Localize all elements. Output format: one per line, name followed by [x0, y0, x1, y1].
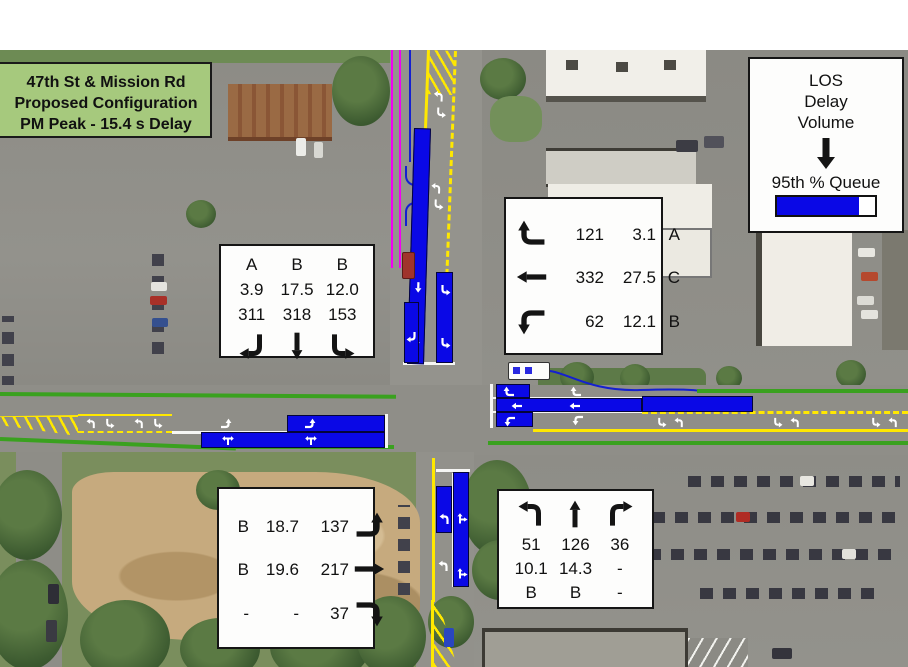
parked-cars-row: [688, 476, 900, 487]
building-roof: [657, 228, 712, 278]
white-lane-arrow-icon: [569, 400, 581, 412]
building-roof: [228, 84, 332, 141]
white-lane-arrow-icon: [656, 417, 667, 428]
right-then-up-arrow-icon: [353, 510, 385, 542]
car: [444, 628, 454, 647]
wb-delay: 12.1: [623, 313, 656, 330]
wb-delay: 27.5: [623, 269, 656, 286]
legend-label-delay: Delay: [750, 93, 902, 110]
top-white-band: [0, 0, 908, 50]
white-lane-arrow-icon: [430, 182, 442, 194]
left-then-up-arrow-icon: [516, 218, 548, 250]
nb-los: B: [525, 584, 536, 601]
parked-car: [861, 272, 878, 281]
eastbound-results-box: B 18.7 137 B 19.6 217 - - 37: [217, 487, 375, 649]
legend-label-los: LOS: [750, 72, 902, 89]
white-lane-arrow-icon: [439, 284, 451, 296]
yellow-edge-line: [432, 458, 435, 602]
stop-bar: [385, 414, 388, 448]
eb-volume: 217: [321, 561, 349, 578]
building-roof: [546, 50, 706, 102]
yellow-center-line: [533, 429, 908, 432]
left-arrow-icon: [516, 261, 548, 293]
white-lane-arrow-icon: [433, 90, 445, 102]
down-arrow-icon: [282, 331, 312, 361]
parking-lot: [882, 230, 908, 350]
nb-los: -: [617, 584, 623, 601]
wb-los: C: [668, 269, 680, 286]
white-lane-arrow-icon: [104, 418, 115, 429]
white-pavement-arrow-icon: [570, 386, 582, 398]
eb-los: B: [238, 561, 249, 578]
sb-delay: 12.0: [326, 281, 359, 298]
wb-volume: 121: [576, 226, 604, 243]
title-line: Proposed Configuration: [6, 95, 206, 113]
two-way-left-turn-lane: [642, 411, 908, 430]
tree: [480, 58, 526, 100]
parked-car: [314, 142, 323, 158]
queue-bar-westbound-through2: [642, 396, 753, 412]
parked-car: [704, 136, 724, 148]
stop-bar: [490, 384, 493, 428]
white-lane-arrow-icon: [439, 513, 451, 525]
eb-delay: -: [293, 605, 299, 622]
tree: [186, 200, 216, 228]
parked-cars-row: [700, 588, 878, 599]
two-way-left-turn-lane: [78, 414, 172, 433]
eb-los: B: [238, 518, 249, 535]
tree: [332, 56, 390, 126]
white-lane-arrow-icon: [456, 568, 468, 580]
legend-queue-bar-fill: [777, 197, 859, 215]
queue-bar-eastbound-left: [287, 415, 385, 432]
sb-delay: 17.5: [280, 281, 313, 298]
white-lane-arrow-icon: [511, 400, 523, 412]
down-then-right-arrow-icon: [327, 331, 357, 361]
wb-volume: 62: [585, 313, 604, 330]
striped-parking: [688, 638, 748, 667]
nb-volume: 126: [561, 536, 589, 553]
parked-cars-row: [648, 549, 898, 560]
left-then-down-arrow-icon: [516, 305, 548, 337]
white-lane-arrow-icon: [222, 435, 234, 447]
green-curb-line: [488, 441, 908, 445]
white-lane-arrow-icon: [134, 418, 145, 429]
grass-patch: [490, 96, 542, 142]
white-lane-arrow-icon: [305, 435, 317, 447]
building-roof: [756, 232, 852, 346]
white-lane-arrow-icon: [86, 418, 97, 429]
wb-los: A: [669, 226, 680, 243]
white-pavement-arrow-icon: [220, 418, 232, 430]
white-lane-arrow-icon: [772, 417, 783, 428]
parked-car: [736, 512, 750, 522]
eb-volume: 37: [330, 605, 349, 622]
nb-volume: 36: [610, 536, 629, 553]
white-lane-arrow-icon: [888, 417, 899, 428]
northbound-results-box: 51 126 36 10.1 14.3 - B B -: [497, 489, 654, 609]
white-lane-arrow-icon: [503, 386, 515, 398]
legend-queue-bar: [775, 195, 877, 217]
white-lane-arrow-icon: [406, 331, 418, 343]
white-lane-arrow-icon: [439, 337, 451, 349]
queue-bar-westbound-through: [496, 398, 642, 412]
white-lane-arrow-icon: [412, 281, 424, 293]
sb-volume: 311: [238, 306, 265, 323]
vehicle: [508, 362, 550, 380]
white-pavement-arrow-icon: [572, 414, 584, 426]
blue-curb-line: [409, 50, 411, 162]
parked-cars-row: [2, 316, 14, 388]
legend-queue-label: 95th % Queue: [750, 174, 902, 191]
southbound-results-box: A B B 3.9 17.5 12.0 311 318 153: [219, 244, 375, 358]
nb-los: B: [570, 584, 581, 601]
truck: [402, 252, 415, 279]
building-roof: [546, 148, 696, 187]
magenta-annotation-line: [399, 50, 401, 268]
nb-delay: 14.3: [559, 560, 592, 577]
title-line: 47th St & Mission Rd: [6, 74, 206, 92]
white-lane-arrow-icon: [870, 417, 881, 428]
queue-bar-southbound-left: [436, 272, 453, 363]
sb-los: B: [291, 256, 302, 273]
title-box: 47th St & Mission Rd Proposed Configurat…: [0, 62, 212, 138]
white-lane-arrow-icon: [434, 106, 446, 118]
parked-car: [150, 296, 167, 305]
right-arrow-icon: [353, 553, 385, 585]
parked-car: [772, 648, 792, 659]
eb-volume: 137: [321, 518, 349, 535]
parked-car: [46, 620, 57, 642]
white-lane-arrow-icon: [504, 415, 516, 427]
rooftop-unit: [616, 62, 628, 72]
building-roof: [482, 628, 688, 667]
queue-bar-northbound-left: [436, 486, 452, 533]
westbound-results-box: 121 3.1 A 332 27.5 C 62 12.1 B: [504, 197, 663, 355]
legend-label-volume: Volume: [750, 114, 902, 131]
up-then-left-arrow-icon: [516, 499, 546, 529]
nb-volume: 51: [522, 536, 541, 553]
nb-delay: 10.1: [515, 560, 548, 577]
white-lane-arrow-icon: [674, 417, 685, 428]
up-arrow-icon: [560, 499, 590, 529]
white-lane-arrow-icon: [432, 198, 444, 210]
sb-volume: 153: [328, 306, 356, 323]
parked-cars-row: [398, 505, 410, 595]
parked-car: [858, 248, 875, 257]
queue-bar-southbound-right: [404, 302, 419, 363]
parked-car: [676, 140, 698, 152]
eb-los: -: [243, 605, 249, 622]
parked-car: [800, 476, 814, 486]
wb-volume: 332: [576, 269, 604, 286]
green-curb-line: [697, 389, 908, 393]
legend-box: LOS Delay Volume 95th % Queue: [748, 57, 904, 233]
sb-delay: 3.9: [240, 281, 264, 298]
eb-delay: 19.6: [266, 561, 299, 578]
down-arrow-icon: [815, 136, 837, 170]
nb-delay: -: [617, 560, 623, 577]
sb-los: B: [337, 256, 348, 273]
parked-car: [296, 138, 306, 156]
title-line: PM Peak - 15.4 s Delay: [6, 116, 206, 134]
white-lane-arrow-icon: [456, 513, 468, 525]
white-pavement-arrow-icon: [438, 560, 450, 572]
tree: [836, 360, 866, 388]
queue-bar-westbound-left: [496, 412, 533, 427]
eb-delay: 18.7: [266, 518, 299, 535]
right-then-down-arrow-icon: [353, 597, 385, 629]
white-lane-arrow-icon: [790, 417, 801, 428]
parked-car: [857, 296, 874, 305]
wb-los: B: [669, 313, 680, 330]
traffic-study-figure: 47th St & Mission Rd Proposed Configurat…: [0, 0, 908, 667]
parked-car: [48, 584, 59, 604]
rooftop-unit: [664, 60, 676, 70]
parked-car: [842, 549, 856, 559]
magenta-annotation-line: [391, 50, 393, 268]
queue-bar-westbound-right: [496, 384, 530, 398]
sb-volume: 318: [283, 306, 311, 323]
blue-curb-line: [520, 362, 720, 398]
sb-los: A: [246, 256, 257, 273]
parked-car: [152, 318, 168, 327]
queue-bar-northbound-through: [453, 472, 469, 587]
wb-delay: 3.1: [632, 226, 656, 243]
rooftop-unit: [566, 60, 578, 70]
up-then-right-arrow-icon: [605, 499, 635, 529]
white-lane-arrow-icon: [152, 418, 163, 429]
parked-car: [861, 310, 878, 319]
queue-bar-eastbound-through: [201, 432, 385, 448]
down-then-left-arrow-icon: [237, 331, 267, 361]
white-lane-arrow-icon: [304, 418, 316, 430]
parked-car: [151, 282, 167, 291]
